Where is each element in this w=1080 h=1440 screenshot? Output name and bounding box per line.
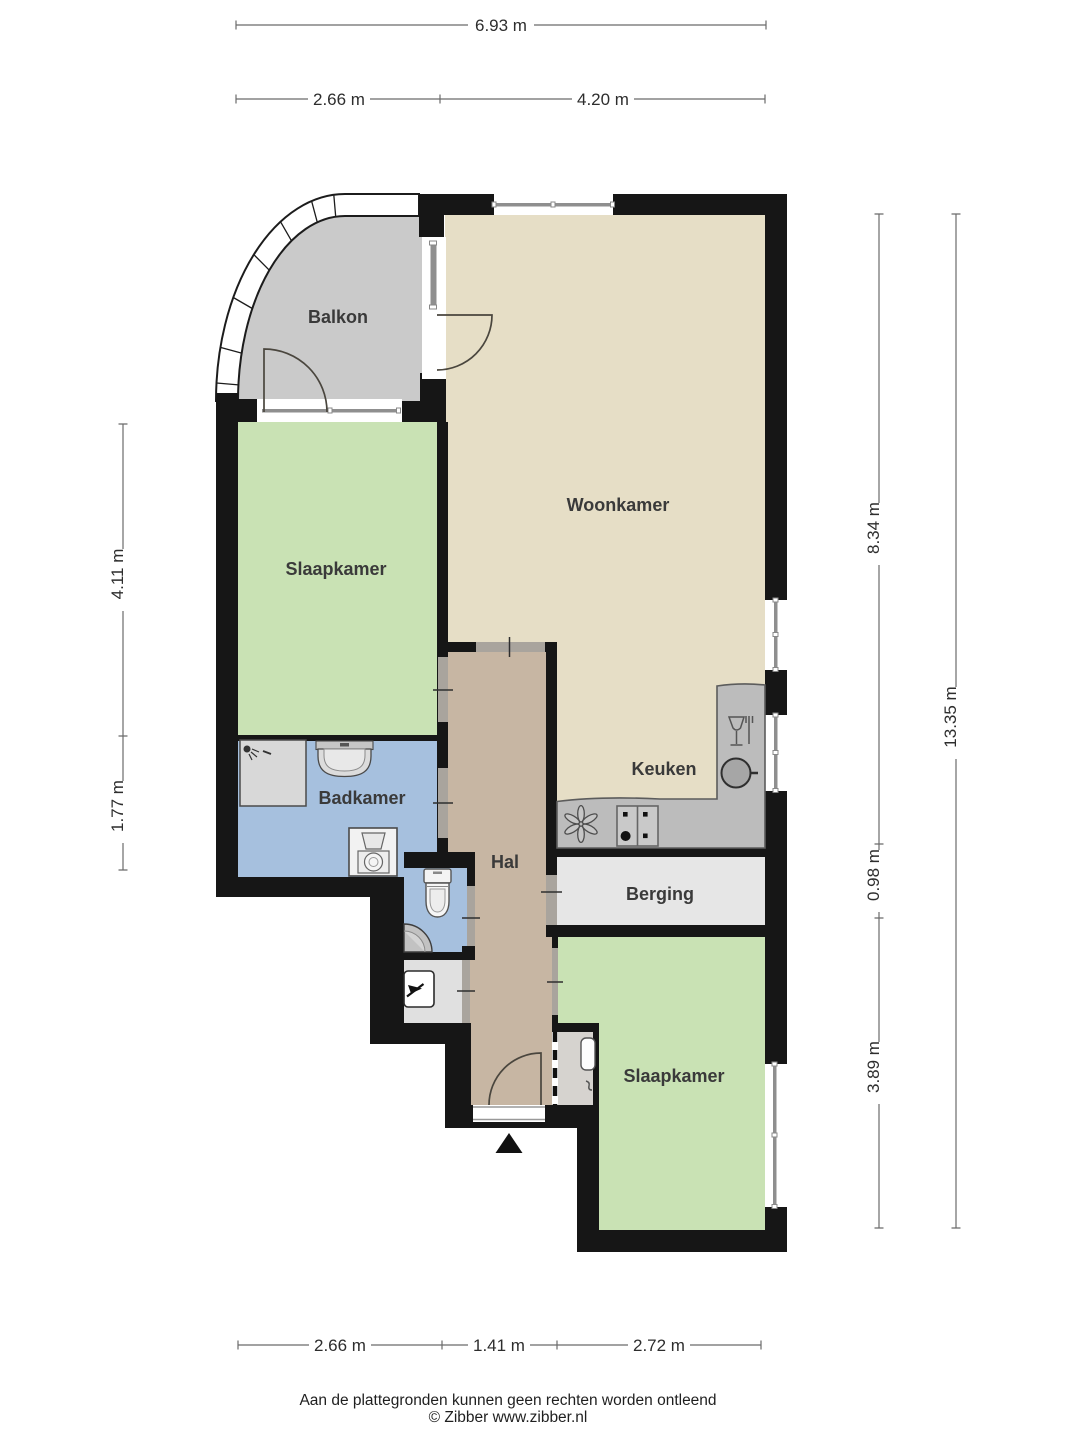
svg-text:8.34 m: 8.34 m: [864, 502, 883, 554]
svg-text:1.41 m: 1.41 m: [473, 1336, 525, 1355]
svg-text:2.72 m: 2.72 m: [633, 1336, 685, 1355]
svg-text:4.20 m: 4.20 m: [577, 90, 629, 109]
svg-text:0.98 m: 0.98 m: [864, 849, 883, 901]
svg-text:2.66 m: 2.66 m: [314, 1336, 366, 1355]
svg-text:2.66 m: 2.66 m: [313, 90, 365, 109]
svg-text:1.77 m: 1.77 m: [108, 780, 127, 832]
svg-text:Berging: Berging: [626, 884, 694, 904]
svg-text:Slaapkamer: Slaapkamer: [623, 1066, 724, 1086]
svg-text:6.93 m: 6.93 m: [475, 16, 527, 35]
svg-text:3.89 m: 3.89 m: [864, 1041, 883, 1093]
svg-text:Balkon: Balkon: [308, 307, 368, 327]
svg-text:Aan de plattegronden kunnen ge: Aan de plattegronden kunnen geen rechten…: [299, 1392, 716, 1409]
svg-text:Hal: Hal: [491, 852, 519, 872]
svg-text:Keuken: Keuken: [631, 759, 696, 779]
svg-text:Badkamer: Badkamer: [318, 788, 405, 808]
svg-text:© Zibber www.zibber.nl: © Zibber www.zibber.nl: [429, 1409, 588, 1426]
svg-text:13.35 m: 13.35 m: [941, 686, 960, 747]
svg-text:Slaapkamer: Slaapkamer: [285, 559, 386, 579]
svg-text:Woonkamer: Woonkamer: [567, 495, 670, 515]
svg-text:4.11 m: 4.11 m: [108, 549, 127, 600]
